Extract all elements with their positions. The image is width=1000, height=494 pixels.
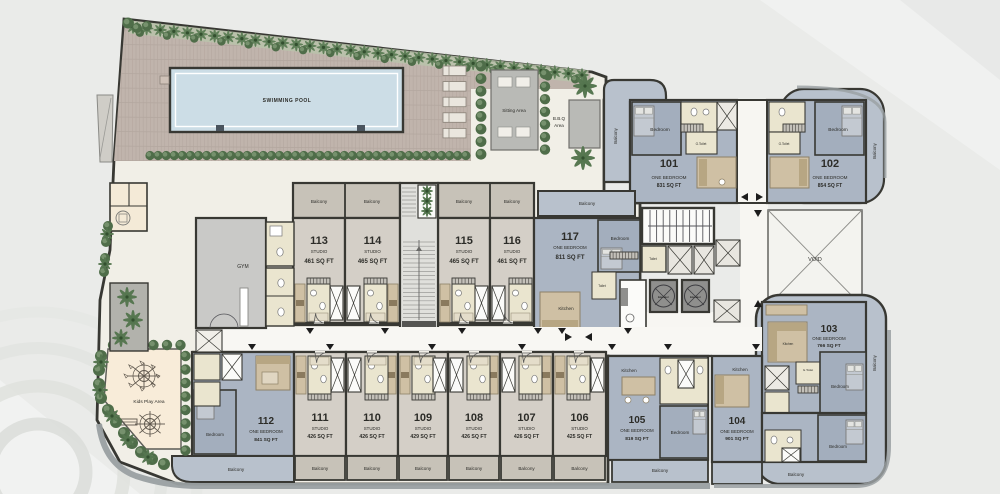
svg-text:Toilet: Toilet xyxy=(649,257,657,261)
svg-text:Kitchen: Kitchen xyxy=(558,306,574,311)
svg-text:461 SQ FT: 461 SQ FT xyxy=(304,259,334,265)
svg-text:Balcony: Balcony xyxy=(466,466,483,471)
svg-text:429 SQ FT: 429 SQ FT xyxy=(410,434,436,440)
svg-text:Balcony: Balcony xyxy=(364,466,381,471)
svg-text:116: 116 xyxy=(503,235,521,247)
svg-text:G.Toilet: G.Toilet xyxy=(696,142,707,146)
svg-text:426 SQ FT: 426 SQ FT xyxy=(461,434,487,440)
svg-text:ONE BEDROOM: ONE BEDROOM xyxy=(553,245,587,250)
svg-text:Balcony: Balcony xyxy=(364,199,381,204)
svg-text:465 SQ FT: 465 SQ FT xyxy=(449,259,479,265)
svg-text:901 SQ FT: 901 SQ FT xyxy=(725,436,749,442)
svg-text:102: 102 xyxy=(821,158,839,170)
svg-text:Elevator: Elevator xyxy=(690,295,701,299)
svg-text:ONE BEDROOM: ONE BEDROOM xyxy=(812,336,846,341)
svg-text:109: 109 xyxy=(414,412,432,424)
svg-text:Kids Play Area: Kids Play Area xyxy=(133,399,165,405)
svg-text:STUDIO: STUDIO xyxy=(364,426,381,431)
svg-text:819 SQ FT: 819 SQ FT xyxy=(625,436,649,442)
svg-text:Sitting Area: Sitting Area xyxy=(502,108,526,113)
svg-text:115: 115 xyxy=(455,235,473,247)
svg-text:107: 107 xyxy=(517,412,535,424)
svg-text:461 SQ FT: 461 SQ FT xyxy=(497,259,527,265)
svg-text:Balcony: Balcony xyxy=(613,127,618,143)
svg-text:Balcony: Balcony xyxy=(415,466,432,471)
svg-text:Bedroom: Bedroom xyxy=(829,444,847,449)
svg-text:Balcony: Balcony xyxy=(518,466,535,471)
svg-text:766 SQ FT: 766 SQ FT xyxy=(817,343,841,349)
svg-text:117: 117 xyxy=(561,231,579,243)
svg-text:ONE BEDROOM: ONE BEDROOM xyxy=(620,428,654,433)
svg-text:STUDIO: STUDIO xyxy=(311,249,328,254)
svg-text:STUDIO: STUDIO xyxy=(312,426,329,431)
svg-text:103: 103 xyxy=(821,324,838,335)
svg-text:108: 108 xyxy=(465,412,483,424)
svg-text:Balcony: Balcony xyxy=(504,199,521,204)
svg-text:114: 114 xyxy=(364,235,383,247)
svg-text:Bedroom: Bedroom xyxy=(671,430,690,435)
svg-text:Kitchen: Kitchen xyxy=(621,368,637,373)
svg-text:STUDIO: STUDIO xyxy=(518,426,535,431)
svg-text:Bedroom: Bedroom xyxy=(831,384,849,389)
svg-text:Bedroom: Bedroom xyxy=(206,432,224,437)
svg-text:Kitchen: Kitchen xyxy=(783,342,794,346)
svg-text:110: 110 xyxy=(363,412,381,424)
svg-text:ONE BEDROOM: ONE BEDROOM xyxy=(720,429,754,434)
svg-text:104: 104 xyxy=(729,416,746,427)
svg-text:STUDIO: STUDIO xyxy=(466,426,483,431)
svg-text:426 SQ FT: 426 SQ FT xyxy=(359,434,385,440)
svg-text:Balcony: Balcony xyxy=(456,199,473,204)
svg-text:841 SQ FT: 841 SQ FT xyxy=(254,437,278,443)
svg-text:112: 112 xyxy=(258,416,275,427)
svg-text:Elevator: Elevator xyxy=(658,295,669,299)
svg-text:425 SQ FT: 425 SQ FT xyxy=(567,434,593,440)
svg-text:Bedroom: Bedroom xyxy=(611,236,630,241)
svg-text:Balcony: Balcony xyxy=(311,199,328,204)
svg-text:VOID: VOID xyxy=(808,257,822,263)
svg-text:106: 106 xyxy=(570,412,588,424)
svg-text:465 SQ FT: 465 SQ FT xyxy=(358,259,388,265)
svg-text:STUDIO: STUDIO xyxy=(456,249,473,254)
svg-text:Balcony: Balcony xyxy=(872,354,877,370)
svg-text:Balcony: Balcony xyxy=(872,142,877,158)
svg-text:Balcony: Balcony xyxy=(228,467,245,472)
svg-text:G.Toilet: G.Toilet xyxy=(803,368,813,372)
svg-text:Bedroom: Bedroom xyxy=(650,127,669,133)
svg-text:811 SQ FT: 811 SQ FT xyxy=(555,255,584,261)
svg-text:Kitchen: Kitchen xyxy=(732,367,748,372)
svg-text:Balcony: Balcony xyxy=(312,466,329,471)
svg-text:ONE BEDROOM: ONE BEDROOM xyxy=(813,175,848,180)
svg-text:831 SQ FT: 831 SQ FT xyxy=(657,183,681,189)
svg-text:Balcony: Balcony xyxy=(788,472,805,477)
svg-text:113: 113 xyxy=(310,235,328,247)
svg-text:B.B.Q: B.B.Q xyxy=(553,116,566,121)
svg-text:426 SQ FT: 426 SQ FT xyxy=(307,434,333,440)
svg-text:STUDIO: STUDIO xyxy=(571,426,588,431)
svg-text:ONE BEDROOM: ONE BEDROOM xyxy=(249,429,283,434)
svg-text:Area: Area xyxy=(554,123,564,128)
svg-text:STUDIO: STUDIO xyxy=(504,249,521,254)
svg-text:101: 101 xyxy=(660,158,678,170)
svg-text:ONE BEDROOM: ONE BEDROOM xyxy=(652,175,687,180)
svg-text:GYM: GYM xyxy=(237,264,248,270)
svg-text:Bedroom: Bedroom xyxy=(828,127,847,133)
svg-text:426 SQ FT: 426 SQ FT xyxy=(514,434,540,440)
svg-text:Balcony: Balcony xyxy=(571,466,588,471)
svg-text:SWIMMING POOL: SWIMMING POOL xyxy=(263,98,312,104)
svg-text:Toilet: Toilet xyxy=(598,284,606,288)
svg-text:105: 105 xyxy=(629,415,646,426)
svg-text:854 SQ FT: 854 SQ FT xyxy=(818,183,842,189)
svg-text:STUDIO: STUDIO xyxy=(364,249,381,254)
svg-text:G.Toilet: G.Toilet xyxy=(779,142,790,146)
svg-text:Balcony: Balcony xyxy=(652,468,669,473)
svg-text:Balcony: Balcony xyxy=(579,201,596,206)
svg-text:111: 111 xyxy=(311,412,328,424)
svg-text:STUDIO: STUDIO xyxy=(415,426,432,431)
